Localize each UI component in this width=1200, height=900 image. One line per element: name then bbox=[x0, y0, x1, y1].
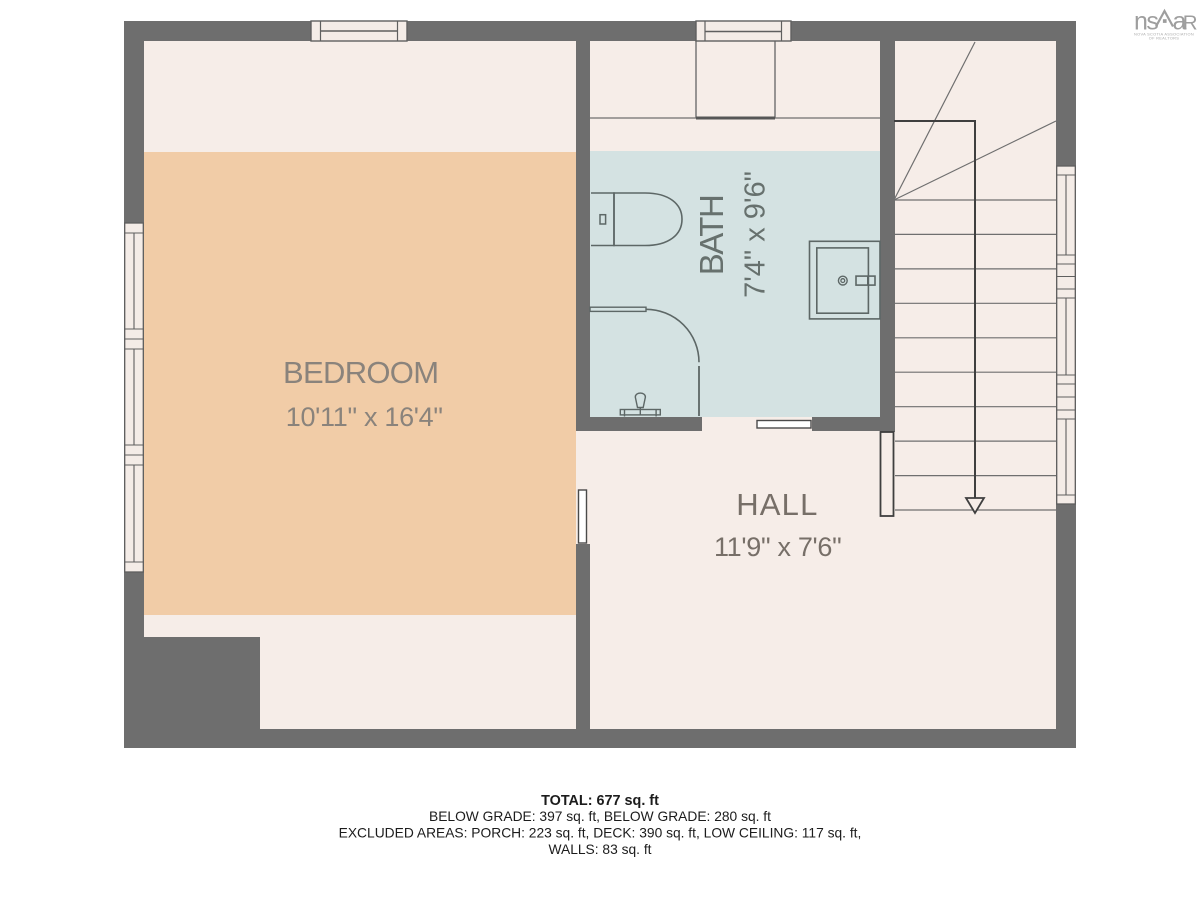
svg-text:EXCLUDED AREAS: PORCH: 223 sq.: EXCLUDED AREAS: PORCH: 223 sq. ft, DECK:… bbox=[339, 826, 862, 841]
svg-text:BATH: BATH bbox=[693, 196, 730, 276]
svg-text:10'11" x 16'4": 10'11" x 16'4" bbox=[286, 402, 443, 432]
svg-text:11'9" x 7'6": 11'9" x 7'6" bbox=[714, 532, 841, 562]
svg-text:TOTAL: 677 sq. ft: TOTAL: 677 sq. ft bbox=[541, 793, 659, 809]
svg-text:WALLS: 83 sq. ft: WALLS: 83 sq. ft bbox=[548, 842, 651, 857]
svg-text:BEDROOM: BEDROOM bbox=[283, 355, 438, 390]
svg-text:7'4" x 9'6": 7'4" x 9'6" bbox=[740, 171, 772, 298]
svg-text:BELOW GRADE: 397 sq. ft, BELOW: BELOW GRADE: 397 sq. ft, BELOW GRADE: 28… bbox=[429, 809, 771, 824]
svg-text:HALL: HALL bbox=[736, 487, 818, 522]
svg-text:OF REALTORS: OF REALTORS bbox=[1149, 36, 1179, 41]
